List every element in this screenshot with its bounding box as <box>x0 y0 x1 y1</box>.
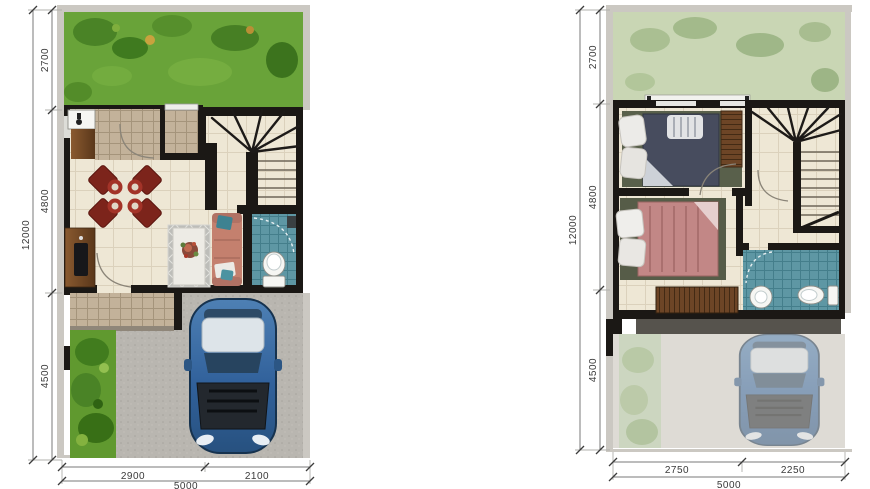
floor-plans-svg: 2700 4800 4500 12000 2900 2100 5000 <box>0 0 870 489</box>
left-bathroom <box>252 214 296 287</box>
dim-label: 2750 <box>665 465 689 476</box>
faded-planting <box>619 334 661 448</box>
pillow <box>619 147 647 179</box>
dim-label: 4800 <box>588 185 599 209</box>
sofa <box>212 213 242 286</box>
toilet <box>263 252 285 287</box>
dim-label: 2700 <box>40 48 51 72</box>
pillow <box>618 238 646 267</box>
right-plan: 2700 4800 4500 12000 2750 2250 5000 <box>568 5 852 489</box>
canopy-shadow <box>636 319 841 334</box>
left-plan: 2700 4800 4500 12000 2900 2100 5000 <box>21 5 314 489</box>
sink <box>750 286 772 308</box>
sofa-pillow-teal <box>216 215 233 230</box>
dim-label: 2700 <box>588 45 599 69</box>
dim-label: 4500 <box>40 364 51 388</box>
dim-label: 2900 <box>121 471 145 482</box>
bedroom-window <box>656 101 696 106</box>
driveway-planting <box>70 330 116 458</box>
kitchen-sink <box>68 110 95 159</box>
vestibule-floor <box>165 110 198 153</box>
right-garden-faded <box>613 12 845 103</box>
car-faded <box>734 334 824 445</box>
left-driveway <box>64 293 303 458</box>
car <box>184 299 282 453</box>
bedroom-window <box>720 101 746 106</box>
garden-palm <box>266 42 298 78</box>
dim-label: 4500 <box>588 358 599 382</box>
pillow <box>616 209 645 239</box>
kitchenette-floor <box>95 108 160 160</box>
living-rug <box>168 225 210 287</box>
wardrobe <box>721 111 742 167</box>
dim-label: 2250 <box>781 465 805 476</box>
left-building <box>64 104 303 295</box>
dim-label: 2100 <box>245 471 269 482</box>
right-bathroom <box>743 250 839 310</box>
dim-label: 12000 <box>568 215 579 245</box>
dim-label: 12000 <box>21 220 32 250</box>
dim-label: 5000 <box>174 481 198 489</box>
porch <box>70 293 174 330</box>
right-building <box>613 100 845 319</box>
left-garden <box>64 12 303 108</box>
tv-cabinet <box>65 228 95 287</box>
garden-bush <box>73 18 117 46</box>
dresser <box>656 287 738 313</box>
entry-sliding-door <box>165 104 198 110</box>
pillow <box>618 114 647 147</box>
dim-label: 5000 <box>717 480 741 489</box>
bedroom-1 <box>618 111 742 187</box>
kitchen-counter <box>71 129 95 159</box>
right-driveway-faded <box>606 319 845 448</box>
toilet <box>798 286 838 305</box>
dim-label: 4800 <box>40 189 51 213</box>
floor-plan-image: 2700 4800 4500 12000 2900 2100 5000 <box>0 0 870 489</box>
tv <box>74 243 88 276</box>
